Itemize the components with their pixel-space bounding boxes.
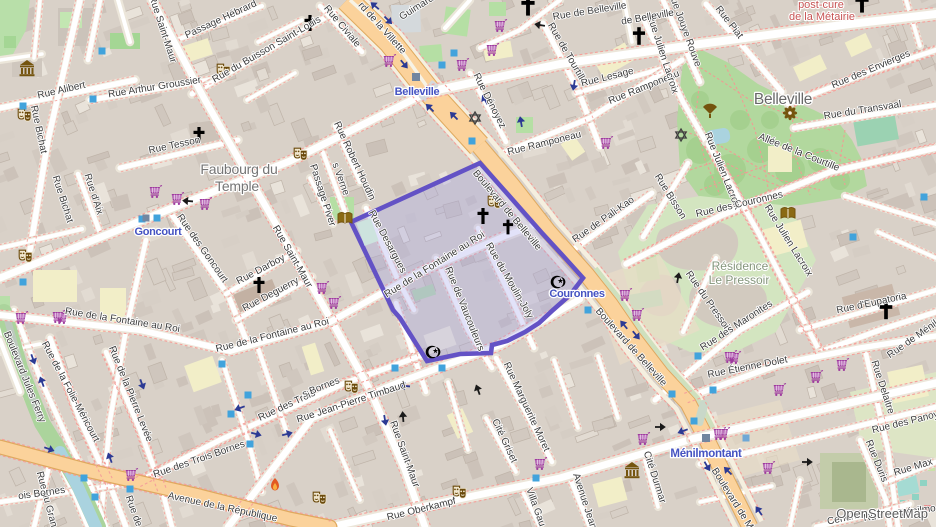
svg-text:OpenStreetMap: OpenStreetMap bbox=[836, 506, 928, 521]
svg-text:de la Métairie: de la Métairie bbox=[789, 11, 855, 23]
svg-text:Belleville: Belleville bbox=[395, 86, 440, 98]
svg-text:Faubourg du: Faubourg du bbox=[200, 161, 277, 177]
svg-text:Ménilmontant: Ménilmontant bbox=[670, 448, 742, 460]
svg-text:Couronnes: Couronnes bbox=[549, 288, 605, 300]
svg-text:Résidence: Résidence bbox=[712, 259, 769, 273]
svg-text:Le Pressoir: Le Pressoir bbox=[709, 273, 770, 287]
svg-text:post-cure: post-cure bbox=[798, 0, 844, 11]
svg-text:Belleville: Belleville bbox=[754, 91, 812, 108]
svg-text:Temple: Temple bbox=[215, 178, 259, 194]
svg-text:Goncourt: Goncourt bbox=[134, 226, 182, 238]
